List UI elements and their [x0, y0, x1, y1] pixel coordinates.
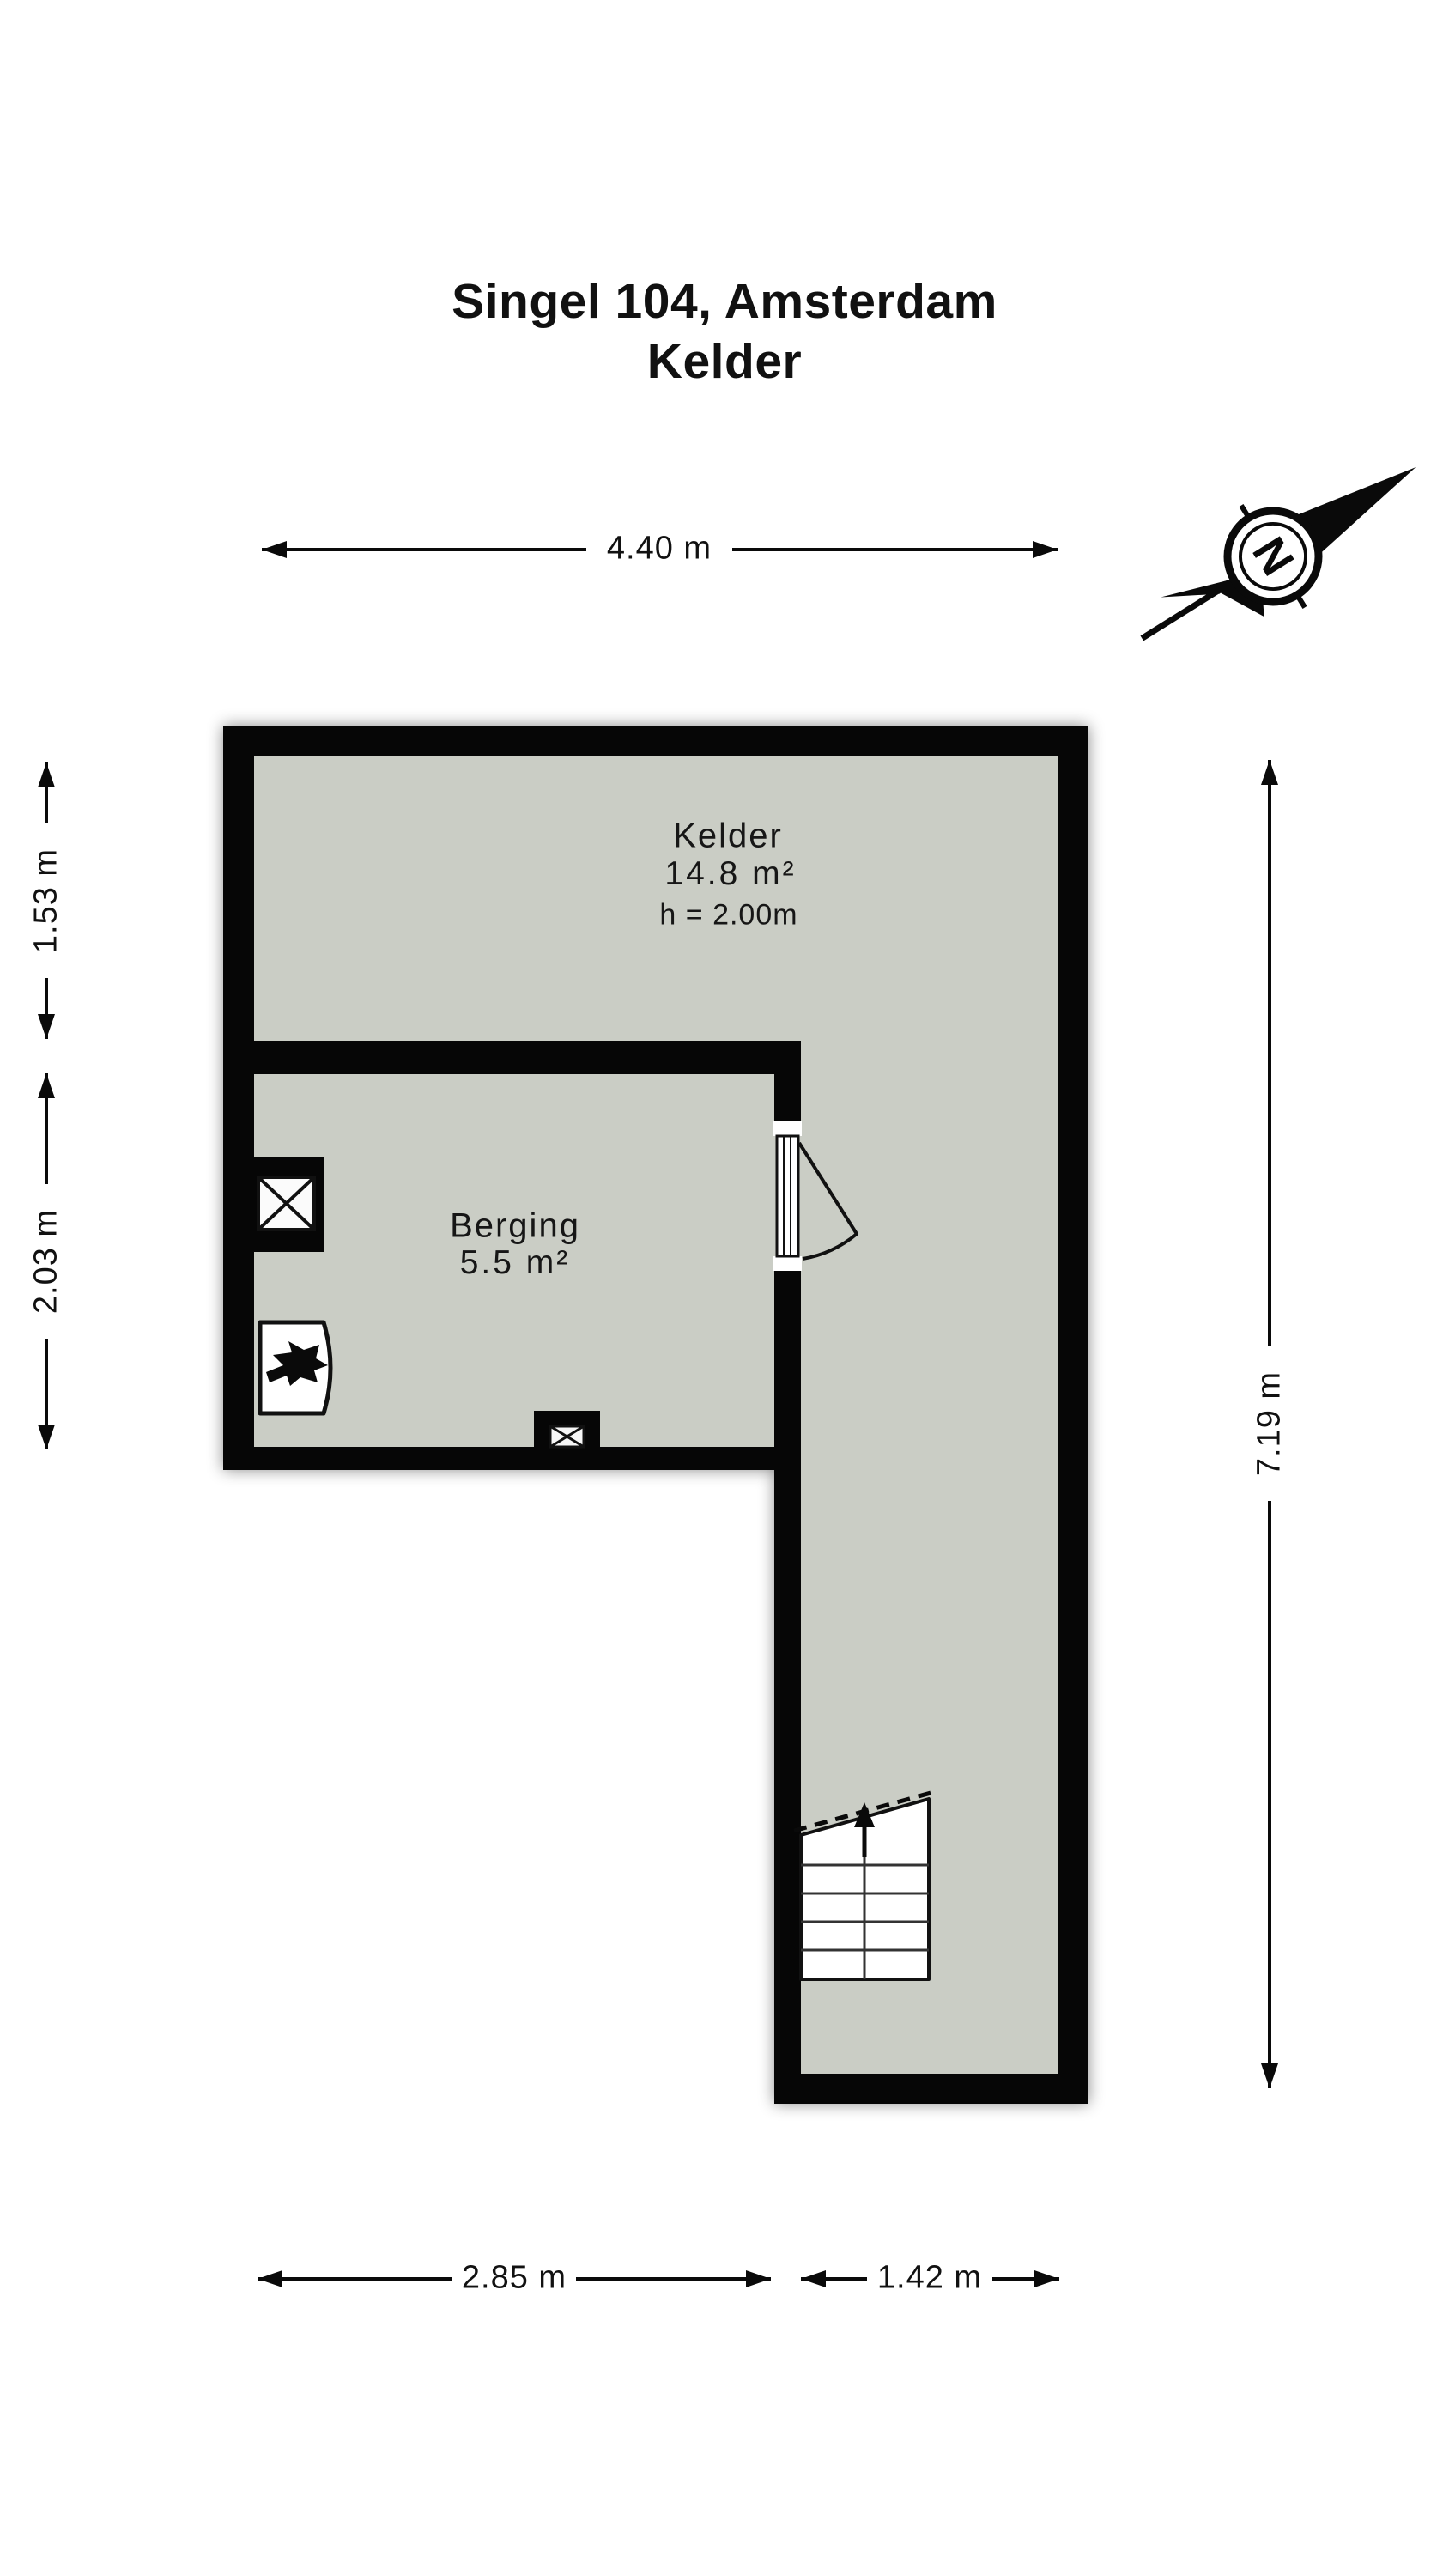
- dim-label-left-upper: 1.53 m: [28, 848, 65, 953]
- dim-label-right: 7.19 m: [1252, 1371, 1288, 1476]
- dim-label-top: 4.40 m: [607, 531, 712, 568]
- dim-label-left-lower: 2.03 m: [28, 1209, 65, 1314]
- kelder-ceiling-height: h = 2.00m: [659, 899, 797, 933]
- compass-rose: N: [1110, 416, 1447, 690]
- title-floor: Kelder: [0, 331, 1449, 392]
- door-jamb-bottom: [773, 1256, 802, 1271]
- title-address: Singel 104, Amsterdam: [0, 271, 1449, 331]
- boiler-symbol: [260, 1322, 330, 1413]
- berging-room-name: Berging: [450, 1207, 580, 1246]
- floor-area: [254, 756, 1058, 2074]
- berging-room-area: 5.5 m²: [460, 1244, 571, 1282]
- door-leaf: [777, 1136, 798, 1256]
- interior-wall-kelder-berging: [254, 1041, 801, 1074]
- dim-label-bottom-left: 2.85 m: [462, 2260, 567, 2297]
- vent-symbol: [534, 1411, 600, 1470]
- page-title: Singel 104, Amsterdam Kelder: [0, 271, 1449, 392]
- kelder-room-area: 14.8 m²: [664, 855, 796, 893]
- door-jamb-top: [773, 1121, 802, 1136]
- dim-label-bottom-right: 1.42 m: [877, 2260, 982, 2297]
- kelder-room-name: Kelder: [673, 817, 783, 856]
- shaft-symbol: [251, 1157, 324, 1252]
